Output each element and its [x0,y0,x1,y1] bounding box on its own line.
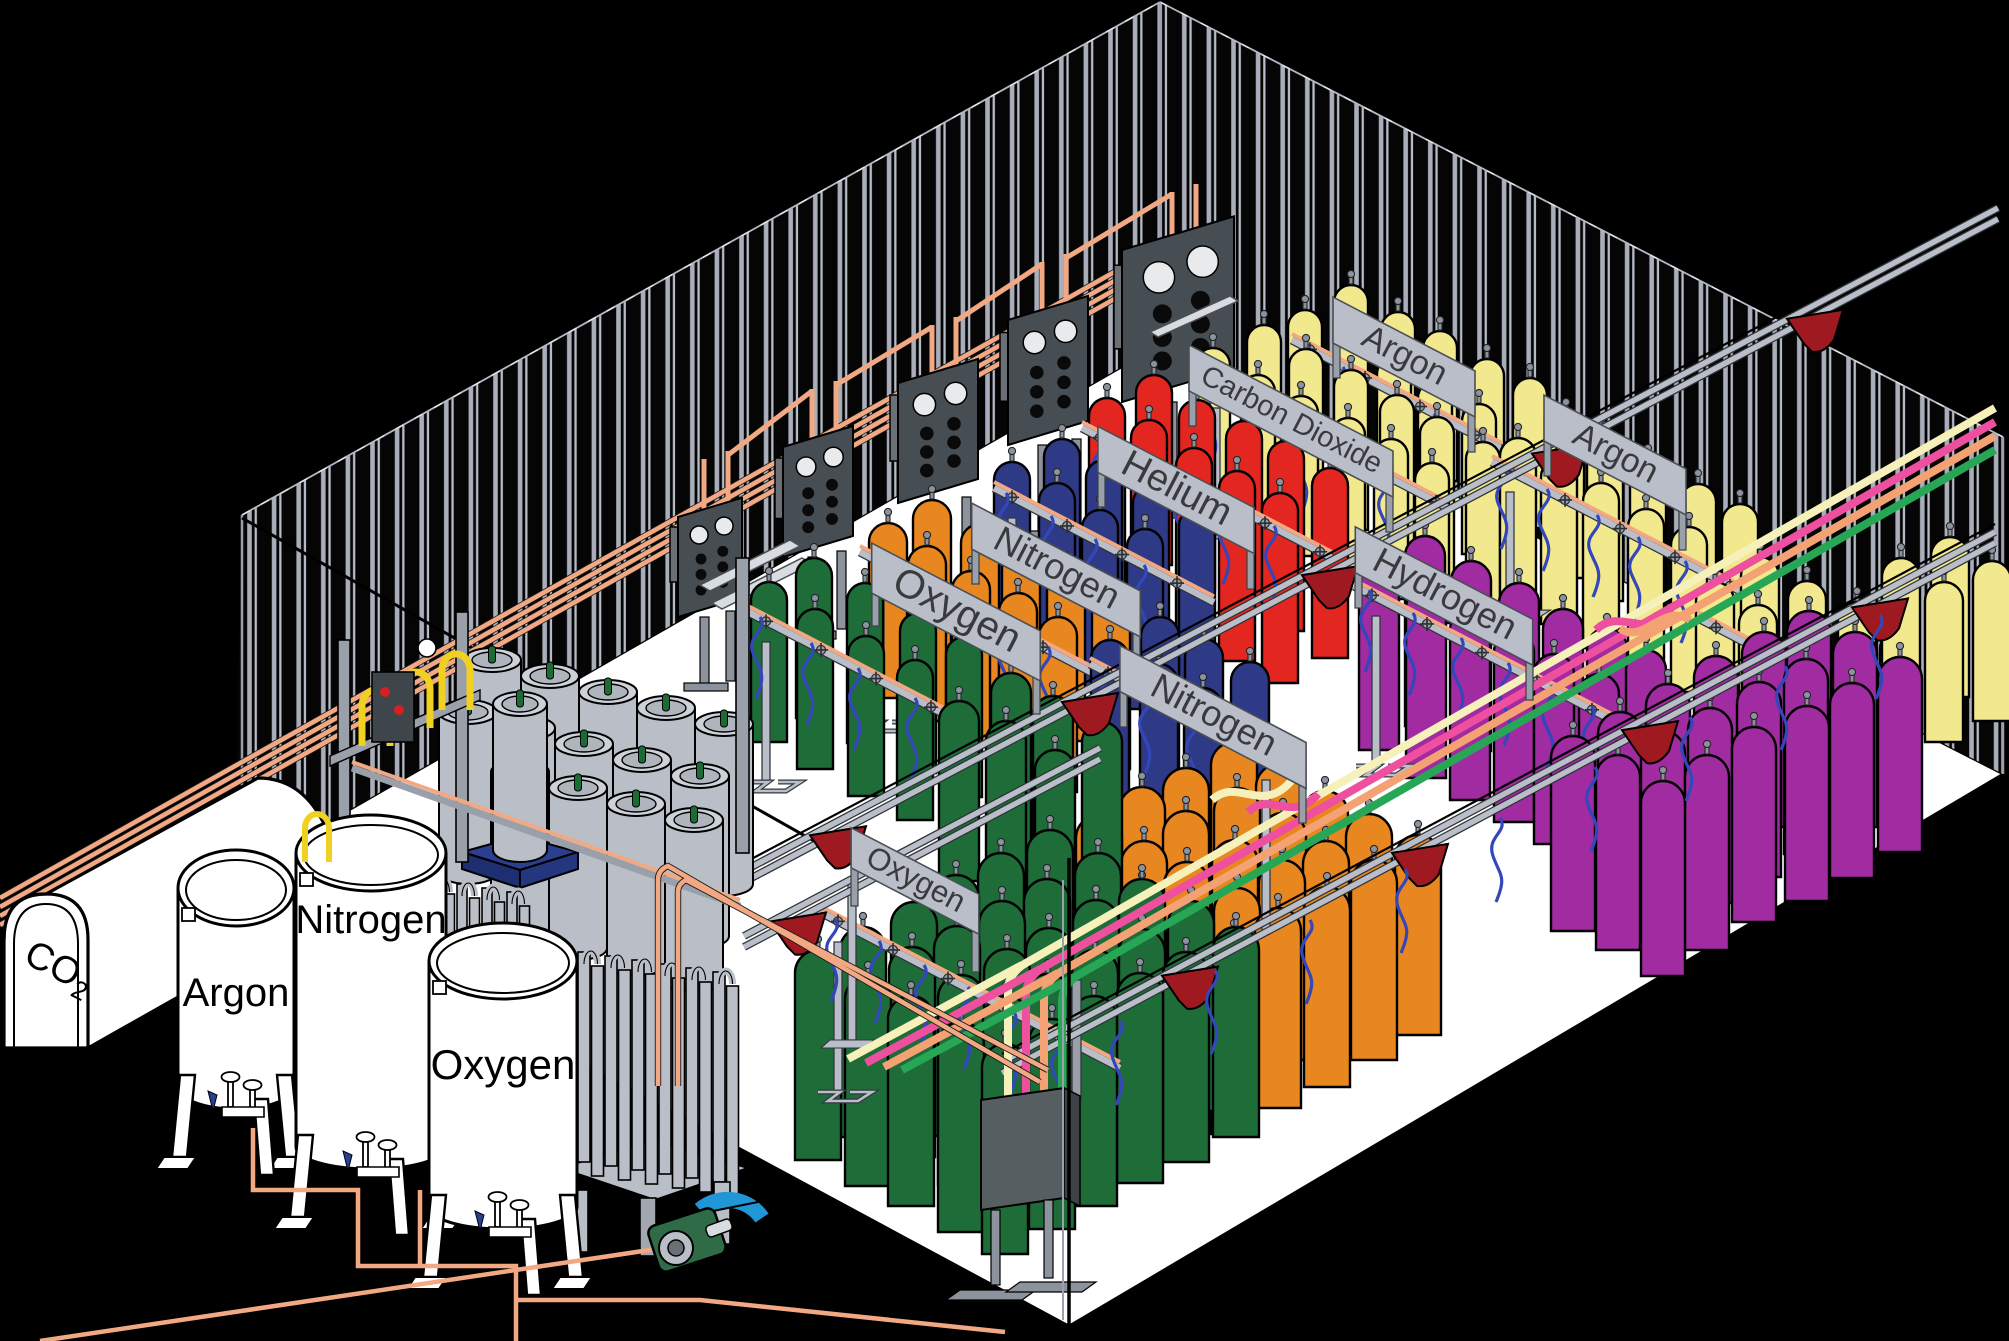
svg-text:Oxygen: Oxygen [431,1041,576,1088]
svg-text:Argon: Argon [183,971,290,1015]
svg-text:Nitrogen: Nitrogen [295,898,446,942]
